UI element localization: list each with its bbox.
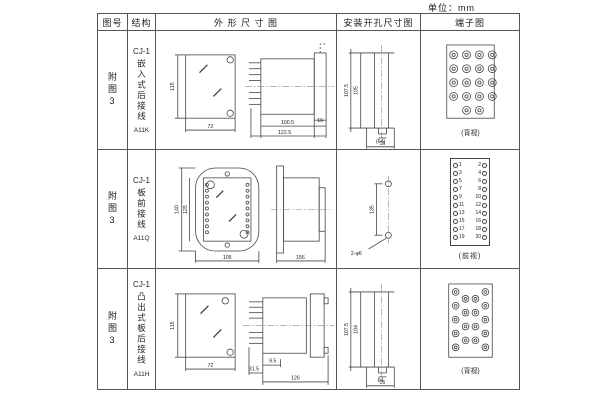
dim-outer-height: 107.5 xyxy=(344,83,350,96)
dim-outer-height: 107.5 xyxy=(344,322,350,335)
side-view: 100.5 16 122.5 xyxy=(245,44,334,138)
header-fig-no: 图号 xyxy=(98,14,128,31)
terminal-number: 3 xyxy=(459,171,462,176)
terminal-circle xyxy=(453,235,458,240)
terminal-circle xyxy=(453,219,458,224)
terminal-row: 56 xyxy=(453,179,487,184)
dim-depth-total: 156 xyxy=(296,254,305,260)
terminal-circles xyxy=(452,288,488,350)
terminal-row: 12 xyxy=(453,163,487,168)
dim-flange: 16 xyxy=(317,118,323,124)
terminal-row: 1920 xyxy=(453,235,487,240)
terminal-number: 12 xyxy=(475,203,481,208)
dimension-table: 图号 结构 外 形 尺 寸 图 安装开孔尺寸图 端子图 附图3 CJ-1 嵌入式… xyxy=(97,13,520,390)
terminal-number: 1 xyxy=(459,163,462,168)
terminal-circle xyxy=(482,195,487,200)
row2-outline-cell: 140 125 105 156 xyxy=(156,150,337,269)
model-label: A11Q xyxy=(133,235,149,242)
terminal-circle xyxy=(453,227,458,232)
terminal-circles xyxy=(450,50,497,113)
front-view: 140 125 105 xyxy=(175,167,259,262)
terminal-row: 1314 xyxy=(453,211,487,216)
model-label: A11K xyxy=(134,127,149,134)
terminal-number: 16 xyxy=(475,219,481,224)
terminal-number: 18 xyxy=(475,227,481,232)
terminal-number: 2 xyxy=(478,163,481,168)
terminal-row: 1516 xyxy=(453,219,487,224)
dim-pin-length: 31.5 xyxy=(249,366,259,372)
terminal-row: 1112 xyxy=(453,203,487,208)
row1-mounting-drawing: 107.5 105 16 (64) xyxy=(337,31,420,150)
dim-inner-height: 125 xyxy=(183,205,189,214)
series-label: CJ-1 xyxy=(133,47,150,56)
terminal-view-label: (背视) xyxy=(461,128,479,137)
terminal-circle xyxy=(482,235,487,240)
header-terminal: 端子图 xyxy=(421,14,519,31)
terminal-box: 1234567891011121314151617181920 xyxy=(450,158,490,246)
terminal-circle xyxy=(453,187,458,192)
terminal-circle xyxy=(453,163,458,168)
dim-depth-body: 100.5 xyxy=(281,120,294,126)
front-view: 115 72 xyxy=(170,293,235,370)
terminal-circle xyxy=(482,187,487,192)
dim-front-height: 115 xyxy=(170,82,176,90)
terminal-circle xyxy=(482,179,487,184)
terminal-row: 1718 xyxy=(453,227,487,232)
row3-outline-cell: 115 72 9.5 xyxy=(156,269,337,389)
row1-terminal-drawing: (背视) xyxy=(421,31,519,150)
terminal-number: 7 xyxy=(459,187,462,192)
dim-front-height: 140 xyxy=(175,205,181,214)
terminal-view-label: (前视) xyxy=(459,251,482,261)
row3-mounting-drawing: 107.5 104 16 64 xyxy=(337,270,420,389)
terminal-number: 8 xyxy=(478,187,481,192)
dim-front-width: 72 xyxy=(207,363,213,369)
dim-width: 64 xyxy=(378,377,384,383)
dim-width: (64) xyxy=(376,138,386,144)
row1-mounting-cell: 107.5 105 16 (64) xyxy=(337,31,421,150)
terminal-number: 5 xyxy=(459,179,462,184)
structure-name: 板前接线 xyxy=(136,188,148,230)
row2-outline-drawing: 140 125 105 156 xyxy=(156,150,336,269)
header-structure: 结构 xyxy=(128,14,156,31)
terminal-circle xyxy=(482,211,487,216)
terminal-number: 11 xyxy=(459,203,464,208)
dim-step: 9.5 xyxy=(269,358,276,364)
dim-inner-height: 104 xyxy=(354,325,360,334)
terminal-number: 4 xyxy=(478,171,481,176)
model-label: A11H xyxy=(134,371,150,378)
dim-depth-total: 126 xyxy=(291,375,300,381)
front-view: 115 72 xyxy=(170,54,235,131)
terminal-row: 78 xyxy=(453,187,487,192)
terminal-number: 13 xyxy=(459,211,465,216)
row2-mounting-drawing: 135 2-φ6 xyxy=(337,150,420,269)
dim-depth-total: 122.5 xyxy=(278,130,291,136)
terminal-circle xyxy=(482,227,487,232)
header-mounting: 安装开孔尺寸图 xyxy=(337,14,421,31)
row2-mounting-cell: 135 2-φ6 xyxy=(337,150,421,269)
header-outline: 外 形 尺 寸 图 xyxy=(156,14,337,31)
terminal-number: 17 xyxy=(459,227,465,232)
drawing-sheet: 单位：mm 图号 结构 外 形 尺 寸 图 安装开孔尺寸图 端子图 附图3 CJ… xyxy=(0,0,600,400)
terminal-circle xyxy=(453,171,458,176)
row2-terminal-cell: 1234567891011121314151617181920 (前视) xyxy=(421,150,519,269)
row3-fig-no: 附图3 xyxy=(98,269,128,389)
fig-no-text: 附图3 xyxy=(106,72,119,109)
terminal-number: 10 xyxy=(475,195,481,200)
row1-terminal-cell: (背视) xyxy=(421,31,519,150)
fig-no-text: 附图3 xyxy=(106,191,119,228)
row2-fig-no: 附图3 xyxy=(98,150,128,269)
terminal-number: 14 xyxy=(475,211,481,216)
structure-name: 嵌入式后接线 xyxy=(136,59,148,122)
structure-name: 凸出式板后接线 xyxy=(136,292,148,366)
terminal-circle xyxy=(482,171,487,176)
terminal-circle xyxy=(453,203,458,208)
side-view: 156 xyxy=(271,165,331,262)
row3-terminal-drawing: (背视) xyxy=(421,270,519,389)
row1-structure: CJ-1 嵌入式后接线 A11K xyxy=(128,31,156,150)
terminal-row: 910 xyxy=(453,195,487,200)
fig-no-text: 附图3 xyxy=(106,311,119,348)
row1-fig-no: 附图3 xyxy=(98,31,128,150)
terminal-circle xyxy=(482,163,487,168)
terminal-number: 20 xyxy=(475,235,481,240)
terminal-number: 15 xyxy=(459,219,465,224)
terminal-circle xyxy=(453,195,458,200)
terminal-number: 6 xyxy=(478,179,481,184)
terminal-circle xyxy=(482,219,487,224)
dim-hole-distance: 135 xyxy=(370,205,376,214)
terminal-view-label: (背视) xyxy=(461,366,479,375)
dim-front-height: 115 xyxy=(170,321,176,329)
terminal-circle xyxy=(453,179,458,184)
row1-outline-drawing: 115 72 100.5 xyxy=(156,31,336,150)
series-label: CJ-1 xyxy=(133,280,150,289)
dim-inner-height: 105 xyxy=(354,86,360,95)
side-view: 9.5 31.5 126 xyxy=(243,293,334,384)
terminal-circle xyxy=(482,203,487,208)
row3-structure: CJ-1 凸出式板后接线 A11H xyxy=(128,269,156,389)
terminal-number: 9 xyxy=(459,195,462,200)
dim-front-width: 105 xyxy=(223,254,232,260)
dim-front-width: 72 xyxy=(207,124,213,130)
row3-outline-drawing: 115 72 9.5 xyxy=(156,270,336,389)
row3-terminal-cell: (背视) xyxy=(421,269,519,389)
series-label: CJ-1 xyxy=(133,176,150,185)
terminal-circle xyxy=(453,211,458,216)
terminal-row: 34 xyxy=(453,171,487,176)
terminal-number: 19 xyxy=(459,235,465,240)
row2-structure: CJ-1 板前接线 A11Q xyxy=(128,150,156,269)
dim-holes: 2-φ6 xyxy=(351,250,362,256)
row1-outline-cell: 115 72 100.5 xyxy=(156,31,337,150)
row2-terminal-drawing: 1234567891011121314151617181920 (前视) xyxy=(450,158,490,261)
row3-mounting-cell: 107.5 104 16 64 xyxy=(337,269,421,389)
